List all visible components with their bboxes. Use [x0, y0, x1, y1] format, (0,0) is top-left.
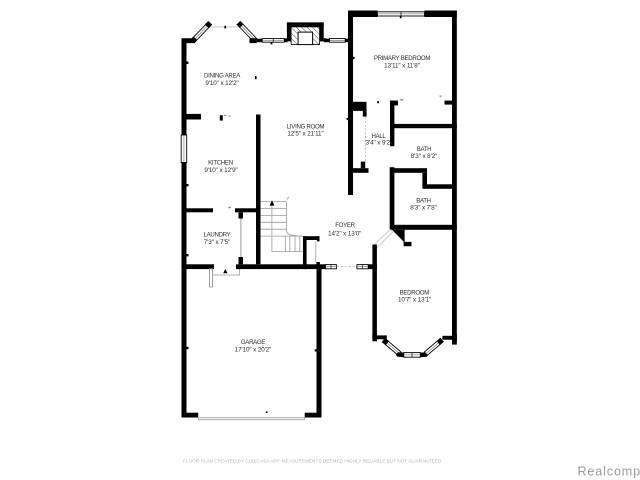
svg-text:13'11" x 11'8": 13'11" x 11'8"	[384, 63, 420, 70]
svg-text:14'2" x 13'0": 14'2" x 13'0"	[328, 231, 361, 238]
svg-text:BATH: BATH	[417, 146, 432, 153]
svg-text:9'10" x 12'9": 9'10" x 12'9"	[204, 167, 237, 174]
svg-text:10'7" x 13'1": 10'7" x 13'1"	[398, 297, 431, 304]
svg-text:8'3" x 7'8": 8'3" x 7'8"	[410, 205, 436, 212]
svg-text:17'10" x 20'2": 17'10" x 20'2"	[235, 347, 272, 354]
svg-text:3'4" x 9'2": 3'4" x 9'2"	[366, 140, 392, 147]
svg-text:12'5" x 21'11": 12'5" x 21'11"	[287, 131, 323, 138]
svg-text:FOYER: FOYER	[335, 222, 355, 229]
svg-text:LIVING ROOM: LIVING ROOM	[287, 123, 325, 130]
svg-text:FLOOR PLAN CREATED BY CUBICASA: FLOOR PLAN CREATED BY CUBICASA APP. MEAS…	[183, 459, 443, 464]
svg-text:9'10" x 12'2": 9'10" x 12'2"	[205, 80, 238, 87]
svg-text:BATH: BATH	[416, 198, 431, 205]
svg-text:DINING AREA: DINING AREA	[204, 73, 241, 80]
svg-text:Realcomp: Realcomp	[578, 465, 640, 479]
svg-text:GARAGE: GARAGE	[241, 339, 266, 346]
svg-text:PRIMARY BEDROOM: PRIMARY BEDROOM	[374, 55, 430, 62]
svg-text:8'3" x 8'2": 8'3" x 8'2"	[411, 153, 437, 160]
svg-text:BEDROOM: BEDROOM	[400, 290, 430, 297]
svg-text:7'3" x 7'5": 7'3" x 7'5"	[204, 239, 230, 246]
svg-text:LAUNDRY: LAUNDRY	[204, 231, 231, 238]
svg-text:KITCHEN: KITCHEN	[208, 159, 233, 166]
